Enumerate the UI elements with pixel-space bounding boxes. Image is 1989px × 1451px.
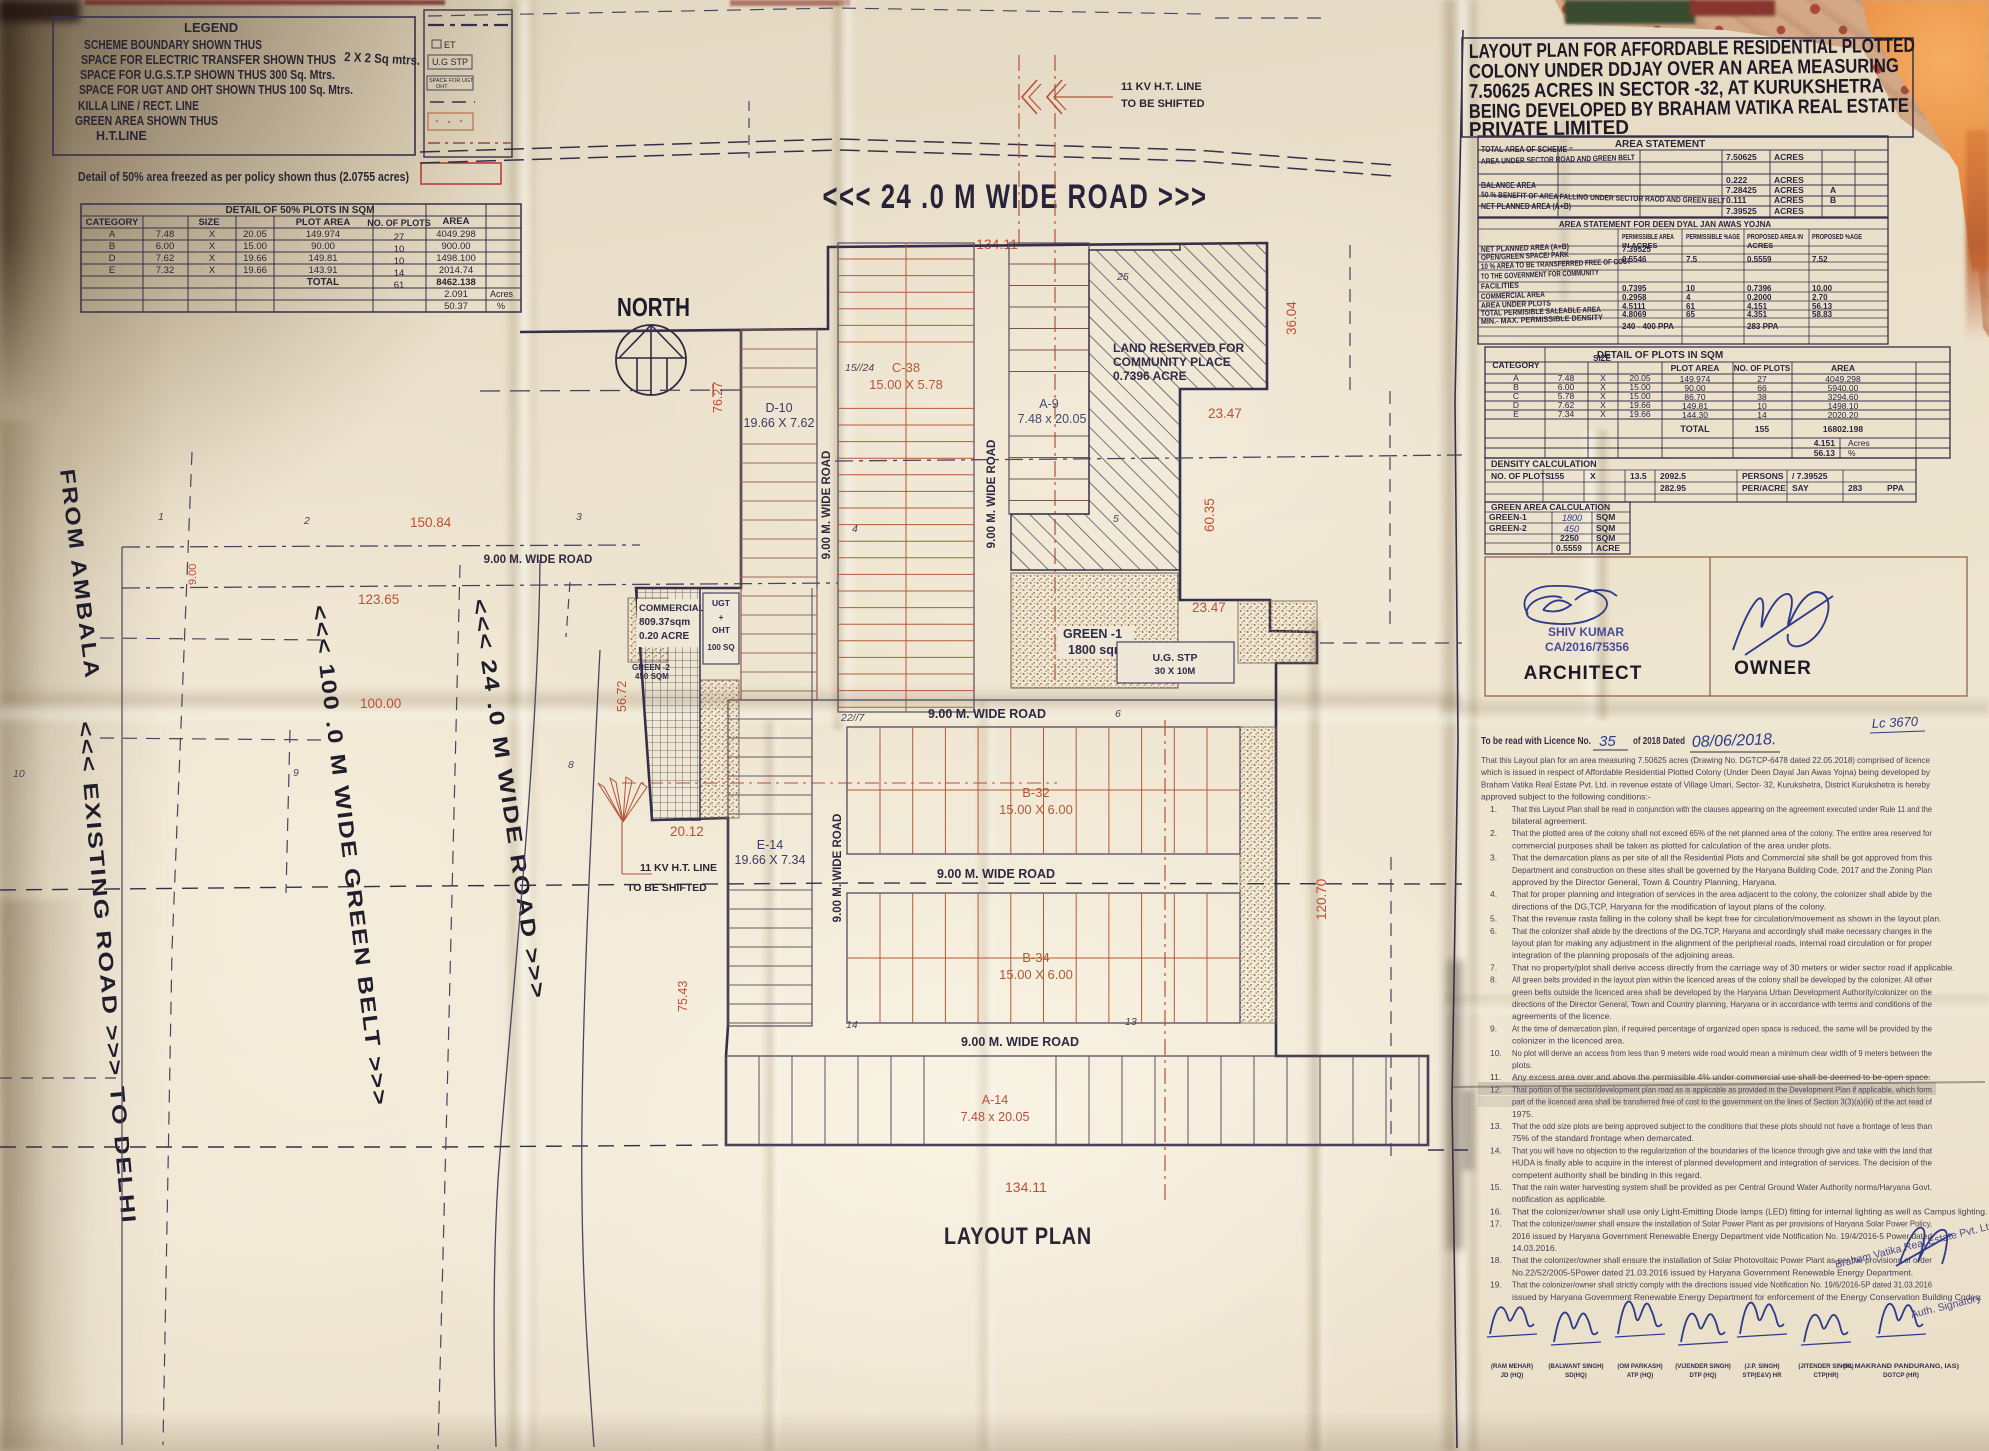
svg-text:8.: 8. (1490, 975, 1497, 985)
svg-text:B: B (109, 241, 115, 252)
svg-text:SPACE FOR ELECTRIC TRANSFER SH: SPACE FOR ELECTRIC TRANSFER SHOWN THUS (81, 53, 336, 67)
svg-text:notification as applicable.: notification as applicable. (1512, 1194, 1607, 1204)
svg-text:20.05: 20.05 (243, 229, 267, 240)
svg-text:SQM: SQM (1596, 533, 1615, 543)
svg-text:bilateral agreement.: bilateral agreement. (1512, 816, 1587, 826)
svg-text:4: 4 (1686, 293, 1691, 302)
svg-text:That the odd size plots are be: That the odd size plots are being approv… (1512, 1121, 1932, 1131)
svg-text:240 - 400 PPA: 240 - 400 PPA (1622, 322, 1674, 331)
svg-text:PRIVATE LIMITED: PRIVATE LIMITED (1469, 117, 1629, 141)
svg-text:5: 5 (1113, 513, 1119, 525)
svg-text:2016 issued by Haryana Governm: 2016 issued by Haryana Government Renewa… (1512, 1231, 1932, 1241)
svg-text:SPACE FOR UGT AND OHT SHOWN TH: SPACE FOR UGT AND OHT SHOWN THUS 100 Sq.… (79, 83, 353, 97)
svg-text:27: 27 (394, 232, 405, 243)
svg-text:SQM: SQM (1596, 512, 1615, 522)
svg-text:That the colonizer/owner shall: That the colonizer/owner shall strictly … (1512, 1280, 1932, 1290)
svg-text:134.11: 134.11 (976, 236, 1018, 252)
svg-text:TOTAL: TOTAL (1680, 424, 1710, 434)
svg-text:16.: 16. (1490, 1206, 1502, 1216)
svg-text:5.: 5. (1490, 914, 1497, 924)
svg-text:<<< EXISTING ROAD >>> TO DELHI: <<< EXISTING ROAD >>> TO DELHI (73, 720, 140, 1225)
svg-text:10: 10 (394, 244, 405, 255)
svg-text:155: 155 (1550, 471, 1564, 481)
svg-text:(J.P. SINGH): (J.P. SINGH) (1744, 1363, 1779, 1370)
svg-text:NET PLANNED AREA (A+B): NET PLANNED AREA (A+B) (1481, 202, 1571, 211)
svg-text:AREA: AREA (443, 216, 470, 227)
svg-text:1498.100: 1498.100 (436, 253, 476, 264)
svg-text:35: 35 (1599, 733, 1616, 750)
svg-text:CATEGORY: CATEGORY (1492, 360, 1540, 370)
svg-text:SIZE: SIZE (198, 217, 219, 228)
svg-text:19.: 19. (1490, 1280, 1502, 1290)
svg-text:PER/ACRE: PER/ACRE (1742, 483, 1786, 493)
svg-text:U.G. STP: U.G. STP (1153, 652, 1198, 664)
svg-text:ACRES: ACRES (1774, 152, 1804, 162)
svg-text:2 X 2 Sq mtrs.: 2 X 2 Sq mtrs. (344, 49, 421, 68)
svg-text:10: 10 (394, 256, 405, 267)
svg-text:22//7: 22//7 (840, 712, 866, 724)
svg-text:X: X (1600, 409, 1606, 419)
svg-text:10: 10 (1686, 284, 1695, 293)
svg-text:ACRES: ACRES (1774, 185, 1804, 195)
svg-text:NORTH: NORTH (617, 292, 690, 322)
svg-text:UGT: UGT (712, 598, 731, 608)
svg-text:To be read with Licence No.: To be read with Licence No. (1481, 735, 1591, 747)
svg-text:0.2958: 0.2958 (1622, 293, 1647, 302)
svg-text:LAYOUT PLAN: LAYOUT PLAN (944, 1223, 1092, 1250)
svg-text:25: 25 (1116, 271, 1129, 283)
svg-text:14.03.2016.: 14.03.2016. (1512, 1243, 1557, 1253)
svg-text:D: D (109, 253, 116, 264)
svg-text:No plot will derive an access: No plot will derive an access from less … (1512, 1048, 1932, 1058)
svg-text:TOTAL: TOTAL (307, 277, 339, 288)
svg-text:61: 61 (394, 280, 405, 291)
svg-text:approved subject to the follow: approved subject to the following condit… (1481, 792, 1651, 802)
svg-text:20.12: 20.12 (670, 824, 704, 839)
svg-text:1: 1 (158, 511, 164, 523)
svg-text:U.G STP: U.G STP (432, 57, 468, 67)
svg-text:6.00: 6.00 (156, 241, 175, 252)
svg-text:7.34: 7.34 (1558, 409, 1575, 419)
svg-text:18.: 18. (1490, 1255, 1502, 1265)
svg-text:OWNER: OWNER (1734, 658, 1812, 679)
svg-text:GREEN AREA SHOWN THUS: GREEN AREA SHOWN THUS (75, 114, 218, 128)
svg-text:E-14: E-14 (757, 838, 783, 852)
svg-text:2014.74: 2014.74 (439, 265, 473, 276)
svg-text:That the colonizer shall abide: That the colonizer shall abide by the di… (1512, 926, 1932, 936)
svg-text:which is issued in respect of: which is issued in respect of Affordable… (1480, 767, 1931, 777)
svg-text:19.66: 19.66 (243, 253, 267, 264)
svg-text:That the demarcation plans as: That the demarcation plans as per site o… (1512, 853, 1932, 863)
svg-text:CTP(HR): CTP(HR) (1813, 1372, 1838, 1379)
svg-text:100 SQ: 100 SQ (707, 643, 734, 652)
svg-text:9.00 M. WIDE ROAD: 9.00 M. WIDE ROAD (821, 451, 833, 560)
svg-text:No.22/52/2005-5Power dated 21.: No.22/52/2005-5Power dated 21.03.2016 is… (1512, 1267, 1913, 1277)
svg-text:10: 10 (13, 768, 25, 780)
svg-text:TO BE SHIFTED: TO BE SHIFTED (1121, 98, 1205, 110)
svg-text:149.81: 149.81 (308, 253, 337, 264)
svg-text:19.66 X 7.34: 19.66 X 7.34 (735, 853, 806, 867)
svg-text:Acres: Acres (1848, 438, 1870, 448)
svg-text:19.66: 19.66 (243, 265, 267, 276)
svg-text:0.111: 0.111 (1726, 195, 1747, 205)
svg-text:9.: 9. (1490, 1023, 1497, 1033)
svg-text:That for proper planning and i: That for proper planning and integration… (1512, 889, 1932, 899)
svg-text:2020.20: 2020.20 (1828, 410, 1859, 420)
svg-text:PLOT AREA: PLOT AREA (1671, 363, 1720, 373)
svg-text:9.00 M. WIDE ROAD: 9.00 M. WIDE ROAD (986, 440, 998, 549)
svg-text:4.: 4. (1490, 889, 1497, 899)
svg-text:X: X (1590, 471, 1596, 481)
svg-text:14: 14 (394, 268, 405, 279)
svg-text:1.: 1. (1490, 804, 1497, 814)
svg-text:ACRES: ACRES (1747, 241, 1773, 250)
svg-text:7.39525: 7.39525 (1622, 245, 1651, 254)
svg-text:<<< 100 .0 M WIDE GREEN BELT >: <<< 100 .0 M WIDE GREEN BELT >>> (307, 604, 391, 1108)
svg-text:2: 2 (303, 515, 310, 527)
svg-text:15.00: 15.00 (243, 241, 267, 252)
svg-text:PERMISSIBLE %AGE: PERMISSIBLE %AGE (1686, 232, 1740, 241)
svg-text:4.351: 4.351 (1747, 310, 1768, 319)
svg-text:SD(HQ): SD(HQ) (1565, 1372, 1587, 1379)
svg-text:30 X 10M: 30 X 10M (1155, 666, 1196, 677)
svg-text:143.91: 143.91 (308, 265, 337, 276)
svg-text:283: 283 (1848, 483, 1862, 493)
svg-text:900.00: 900.00 (441, 241, 470, 252)
svg-text:DGTCP (HR): DGTCP (HR) (1883, 1372, 1919, 1379)
svg-text:9.00 M. WIDE ROAD: 9.00 M. WIDE ROAD (484, 554, 593, 566)
svg-text:%: % (497, 301, 505, 311)
svg-text:of 2018 Dated: of 2018 Dated (1633, 735, 1685, 747)
svg-text:colonizer in the licenced area: colonizer in the licenced area. (1512, 1036, 1624, 1046)
svg-text:FACILITIES: FACILITIES (1481, 281, 1519, 291)
svg-text:NO. OF PLOTS: NO. OF PLOTS (367, 218, 431, 228)
svg-text:(RAM MEHAR): (RAM MEHAR) (1491, 1363, 1533, 1370)
svg-text:Braham Vatika Real Estate Pvt.: Braham Vatika Real Estate Pvt. Ltd. in r… (1481, 779, 1931, 789)
svg-text:HUDA is finally able to acquir: HUDA is finally able to acquire in the i… (1512, 1158, 1932, 1168)
svg-text:11.: 11. (1490, 1072, 1501, 1082)
svg-text:At the time of demarcation pla: At the time of demarcation plan, if requ… (1512, 1023, 1932, 1033)
svg-text:2.091: 2.091 (444, 289, 468, 300)
svg-text:issued by Haryana Government R: issued by Haryana Government Renewable E… (1512, 1292, 1982, 1302)
svg-text:19.66: 19.66 (1629, 409, 1651, 419)
svg-text:TO BE SHIFTED: TO BE SHIFTED (627, 882, 707, 894)
svg-text:commercial purposes shall be t: commercial purposes shall be taken as pl… (1512, 840, 1831, 850)
svg-text:(K. MAKRAND PANDURANG, IAS): (K. MAKRAND PANDURANG, IAS) (1843, 1363, 1959, 1370)
svg-text:149.974: 149.974 (306, 229, 340, 240)
svg-text:B: B (1830, 195, 1836, 205)
svg-text:14.: 14. (1490, 1145, 1502, 1155)
svg-text:Acres: Acres (490, 289, 514, 299)
svg-text:PROPOSED %AGE: PROPOSED %AGE (1812, 232, 1862, 241)
svg-text:7.48 x 20.05: 7.48 x 20.05 (961, 1110, 1030, 1124)
svg-text:16802.198: 16802.198 (1823, 424, 1863, 434)
svg-text:directions of the DG,TCP, Hary: directions of the DG,TCP, Haryana for th… (1512, 901, 1826, 911)
svg-text:150.84: 150.84 (410, 515, 452, 530)
svg-text:agreements of the licence.: agreements of the licence. (1512, 1011, 1612, 1021)
svg-text:B-32: B-32 (1022, 785, 1049, 800)
svg-text:14: 14 (846, 1019, 858, 1031)
svg-text:That the rain water harvesting: That the rain water harvesting system sh… (1512, 1182, 1932, 1192)
svg-text:283 PPA: 283 PPA (1747, 322, 1779, 331)
svg-text:10.: 10. (1490, 1048, 1502, 1058)
svg-text:10.00: 10.00 (1812, 284, 1833, 293)
svg-text:PLOT AREA: PLOT AREA (296, 217, 351, 228)
svg-text:65: 65 (1686, 310, 1695, 319)
svg-text:SQM: SQM (1596, 523, 1615, 533)
svg-text:OHT: OHT (712, 625, 731, 635)
svg-text:That the revenue rasta falling: That the revenue rasta falling in the co… (1512, 914, 1942, 924)
svg-text:PERMISSIBLE AREA: PERMISSIBLE AREA (1622, 232, 1674, 241)
svg-text:DETAIL OF 50% PLOTS IN SQM: DETAIL OF 50% PLOTS IN SQM (225, 205, 374, 216)
svg-text:A-14: A-14 (982, 1093, 1008, 1107)
svg-text:2.70: 2.70 (1812, 293, 1828, 302)
svg-text:7.28425: 7.28425 (1726, 185, 1757, 195)
svg-text:56.72: 56.72 (615, 681, 629, 712)
svg-text:6.: 6. (1490, 926, 1497, 936)
svg-text:NO. OF PLOTS: NO. OF PLOTS (1734, 364, 1791, 373)
svg-text:E: E (1513, 409, 1519, 419)
svg-text:2092.5: 2092.5 (1660, 471, 1686, 481)
svg-text:SAY: SAY (1792, 483, 1809, 493)
svg-text:That the plotted area of the c: That the plotted area of the colony shal… (1512, 828, 1932, 838)
svg-text:GREEN-2: GREEN-2 (1489, 523, 1527, 533)
svg-text:That you will have no objectio: That you will have no objection to the r… (1512, 1145, 1933, 1155)
svg-text:A: A (109, 229, 116, 240)
svg-text:AREA STATEMENT: AREA STATEMENT (1615, 139, 1705, 150)
svg-text:JD (HQ): JD (HQ) (1501, 1372, 1524, 1379)
svg-text:LAND RESERVED FOR: LAND RESERVED FOR (1113, 341, 1244, 355)
svg-text:(BALWANT SINGH): (BALWANT SINGH) (1548, 1363, 1603, 1370)
svg-text:809.37sqm: 809.37sqm (639, 617, 690, 628)
svg-text:0.7396 ACRE: 0.7396 ACRE (1113, 369, 1187, 383)
svg-text:ET: ET (444, 40, 456, 50)
svg-text:100.00: 100.00 (360, 696, 401, 711)
svg-text:9: 9 (293, 767, 299, 779)
svg-text:0.20 ACRE: 0.20 ACRE (639, 631, 690, 642)
svg-text:+: + (719, 612, 724, 622)
svg-text:15//24: 15//24 (845, 362, 874, 374)
svg-text:ARCHITECT: ARCHITECT (1524, 663, 1643, 684)
svg-text:KILLA LINE / RECT. LINE: KILLA LINE / RECT. LINE (78, 99, 199, 113)
svg-text:2.: 2. (1490, 828, 1497, 838)
svg-text:DETAIL OF PLOTS IN SQM: DETAIL OF PLOTS IN SQM (1597, 350, 1723, 361)
svg-text:0.5546: 0.5546 (1622, 255, 1647, 264)
svg-text:GREEN -1: GREEN -1 (1063, 627, 1122, 641)
svg-text:60.35: 60.35 (1202, 498, 1217, 532)
svg-text:17.: 17. (1490, 1219, 1502, 1229)
svg-text:C-38: C-38 (892, 360, 920, 375)
svg-text:That no property/plot shall de: That no property/plot shall derive acces… (1512, 962, 1955, 972)
svg-text:8462.138: 8462.138 (436, 277, 476, 288)
svg-text:AREA STATEMENT FOR DEEN DYAL J: AREA STATEMENT FOR DEEN DYAL JAN AWAS YO… (1559, 220, 1772, 229)
svg-text:56.13: 56.13 (1814, 448, 1836, 458)
svg-text:4.151: 4.151 (1814, 438, 1836, 448)
svg-text:GREEN AREA CALCULATION: GREEN AREA CALCULATION (1491, 502, 1610, 512)
svg-text:Lc 3670: Lc 3670 (1871, 714, 1919, 731)
svg-text:CATEGORY: CATEGORY (86, 217, 139, 228)
svg-text:50.37: 50.37 (444, 301, 468, 312)
svg-text:75% of the standard frontage w: 75% of the standard frontage when demarc… (1512, 1133, 1694, 1143)
svg-text:13.: 13. (1490, 1121, 1502, 1131)
svg-text:2250: 2250 (1560, 533, 1579, 543)
svg-text:LEGEND: LEGEND (184, 20, 238, 35)
svg-text:SHIV KUMAR: SHIV KUMAR (1548, 625, 1624, 639)
svg-text:(OM PARKASH): (OM PARKASH) (1617, 1363, 1662, 1370)
svg-text:%: % (1848, 448, 1856, 458)
svg-text:134.11: 134.11 (1005, 1179, 1047, 1195)
svg-text:144.30: 144.30 (1682, 410, 1708, 420)
svg-text:15.00 X 6.00: 15.00 X 6.00 (999, 802, 1073, 817)
svg-text:CA/2016/75356: CA/2016/75356 (1545, 640, 1629, 654)
svg-text:3.: 3. (1490, 853, 1497, 863)
svg-text:1800: 1800 (1562, 513, 1582, 523)
svg-text:13.5: 13.5 (1630, 471, 1647, 481)
svg-text:58.83: 58.83 (1812, 310, 1833, 319)
svg-text:7.5: 7.5 (1686, 255, 1698, 264)
svg-text:DTP (HQ): DTP (HQ) (1690, 1372, 1717, 1379)
svg-text:7.48: 7.48 (156, 229, 175, 240)
svg-text:11 KV H.T. LINE: 11 KV H.T. LINE (640, 862, 717, 874)
svg-text:X: X (209, 253, 216, 264)
svg-text:<<< 24 .0 M WIDE ROAD >>>: <<< 24 .0 M WIDE ROAD >>> (823, 178, 1208, 216)
svg-text:PERSONS: PERSONS (1742, 471, 1784, 481)
svg-text:X: X (209, 241, 216, 252)
svg-text:SIZE: SIZE (1593, 354, 1611, 363)
svg-text:B-34: B-34 (1022, 950, 1049, 965)
svg-text:7.48 x 20.05: 7.48 x 20.05 (1018, 412, 1087, 426)
svg-text:ATP (HQ): ATP (HQ) (1627, 1372, 1654, 1379)
svg-text:120.70: 120.70 (1314, 879, 1329, 920)
svg-text:COMMERCIAL: COMMERCIAL (639, 603, 705, 614)
svg-text:Department and construction on: Department and construction on these sit… (1512, 865, 1932, 875)
svg-text:FROM AMBALA: FROM AMBALA (55, 468, 104, 681)
svg-text:AREA: AREA (1831, 363, 1855, 373)
svg-text:BALANCE AREA: BALANCE AREA (1481, 181, 1536, 190)
svg-text:08/06/2018.: 08/06/2018. (1692, 731, 1777, 751)
svg-text:COMMUNITY PLACE: COMMUNITY PLACE (1113, 355, 1231, 369)
svg-text:6: 6 (1115, 708, 1121, 720)
svg-text:approved by the Director Gener: approved by the Director General, Town &… (1512, 877, 1777, 887)
svg-text:SCHEME BOUNDARY SHOWN THUS: SCHEME BOUNDARY SHOWN THUS (84, 38, 262, 52)
svg-text:75.43: 75.43 (676, 981, 690, 1012)
svg-text:7.39525: 7.39525 (1726, 206, 1757, 216)
svg-text:All green belts provided in th: All green belts provided in the layout p… (1512, 975, 1932, 985)
svg-text:A: A (1830, 185, 1836, 195)
svg-text:0.7395: 0.7395 (1622, 284, 1647, 293)
svg-text:8: 8 (568, 759, 574, 771)
svg-text:1975.: 1975. (1512, 1109, 1533, 1119)
svg-text:PROPOSED AREA IN: PROPOSED AREA IN (1747, 232, 1803, 241)
svg-text:9.00 M. WIDE ROAD: 9.00 M. WIDE ROAD (961, 1035, 1079, 1049)
svg-text:ACRES: ACRES (1774, 175, 1804, 185)
svg-text:H.T.LINE: H.T.LINE (96, 129, 147, 143)
svg-text:integration of the planning pr: integration of the planning proposals of… (1512, 950, 1735, 960)
svg-text:7.52: 7.52 (1812, 255, 1828, 264)
svg-text:0.5559: 0.5559 (1747, 255, 1772, 264)
svg-text:4.8069: 4.8069 (1622, 310, 1647, 319)
svg-text:0.5559: 0.5559 (1556, 543, 1582, 553)
svg-text:STP(E&V) HR: STP(E&V) HR (1743, 1372, 1783, 1379)
svg-text:9.00 M. WIDE ROAD: 9.00 M. WIDE ROAD (832, 814, 844, 923)
svg-text:9.00: 9.00 (187, 564, 199, 585)
svg-text:(VIJENDER SINGH): (VIJENDER SINGH) (1675, 1363, 1731, 1370)
svg-text:That the colonizer/owner shall: That the colonizer/owner shall use only … (1512, 1206, 1987, 1216)
svg-text:E: E (109, 265, 115, 276)
svg-text:X: X (209, 229, 216, 240)
svg-text:7.62: 7.62 (156, 253, 175, 264)
svg-text:That the colonizer/owner shall: That the colonizer/owner shall ensure th… (1512, 1219, 1932, 1229)
svg-text:9.00 M. WIDE ROAD: 9.00 M. WIDE ROAD (937, 867, 1055, 881)
svg-text:SPACE FOR U.G.S.T.P SHOWN THUS: SPACE FOR U.G.S.T.P SHOWN THUS 300 Sq. M… (80, 68, 335, 82)
svg-text:19.66 X 7.62: 19.66 X 7.62 (744, 416, 815, 430)
svg-text:23.47: 23.47 (1208, 406, 1242, 421)
svg-text:7.32: 7.32 (156, 265, 175, 276)
svg-text:23.47: 23.47 (1192, 600, 1226, 615)
svg-text:DENSITY CALCULATION: DENSITY CALCULATION (1491, 459, 1597, 469)
svg-text:11 KV H.T. LINE: 11 KV H.T. LINE (1121, 81, 1202, 93)
svg-text:D-10: D-10 (765, 401, 792, 415)
svg-text:0.2000: 0.2000 (1747, 293, 1772, 302)
svg-text:36.04: 36.04 (1284, 301, 1299, 335)
svg-text:GREEN-1: GREEN-1 (1489, 512, 1527, 522)
svg-text:PPA: PPA (1887, 483, 1904, 493)
svg-text:0.222: 0.222 (1726, 175, 1748, 185)
svg-text:282.95: 282.95 (1660, 483, 1686, 493)
svg-text:9.00 M. WIDE ROAD: 9.00 M. WIDE ROAD (928, 707, 1046, 721)
svg-text:15.: 15. (1490, 1182, 1502, 1192)
svg-text:13: 13 (1125, 1016, 1137, 1028)
svg-text:plots.: plots. (1512, 1060, 1532, 1070)
svg-text:Detail of 50% area freezed as: Detail of 50% area freezed as per policy… (78, 169, 409, 184)
svg-text:A-9: A-9 (1039, 397, 1059, 411)
svg-text:7.50625: 7.50625 (1726, 152, 1757, 162)
svg-text:123.65: 123.65 (358, 592, 399, 607)
svg-text:3: 3 (576, 511, 582, 523)
svg-text:15.00 X 6.00: 15.00 X 6.00 (999, 967, 1073, 982)
svg-text:7.: 7. (1490, 962, 1497, 972)
svg-text:15.00 X 5.78: 15.00 X 5.78 (869, 377, 943, 392)
svg-text:layout plan for making any adj: layout plan for making any adjustment in… (1512, 938, 1932, 948)
svg-text:green belts outside the licenc: green belts outside the licenced area sh… (1512, 987, 1932, 997)
svg-text:0.7396: 0.7396 (1747, 284, 1772, 293)
svg-text:/ 7.39525: / 7.39525 (1792, 471, 1828, 481)
svg-text:155: 155 (1755, 424, 1769, 434)
svg-text:NO. OF PLOTS: NO. OF PLOTS (1491, 471, 1551, 481)
svg-text:directions of the Director Gen: directions of the Director General, Town… (1512, 999, 1932, 1009)
svg-text:ACRES: ACRES (1774, 206, 1804, 216)
svg-text:competent authority shall be b: competent authority shall be binding in … (1512, 1170, 1702, 1180)
svg-text:ACRES: ACRES (1774, 195, 1804, 205)
svg-text:TOTAL AREA OF SCHEME =: TOTAL AREA OF SCHEME = (1481, 145, 1573, 154)
svg-text:OHT: OHT (436, 84, 448, 90)
svg-text:4: 4 (852, 523, 858, 535)
svg-text:That this Layout plan for an a: That this Layout plan for an area measur… (1481, 755, 1930, 765)
svg-text:That this Layout Plan shall be: That this Layout Plan shall be read in c… (1512, 804, 1932, 814)
svg-text:4049.298: 4049.298 (436, 229, 476, 240)
svg-text:14: 14 (1757, 410, 1767, 420)
svg-text:90.00: 90.00 (311, 241, 335, 252)
svg-text:X: X (209, 265, 216, 276)
svg-text:ACRE: ACRE (1596, 543, 1620, 553)
